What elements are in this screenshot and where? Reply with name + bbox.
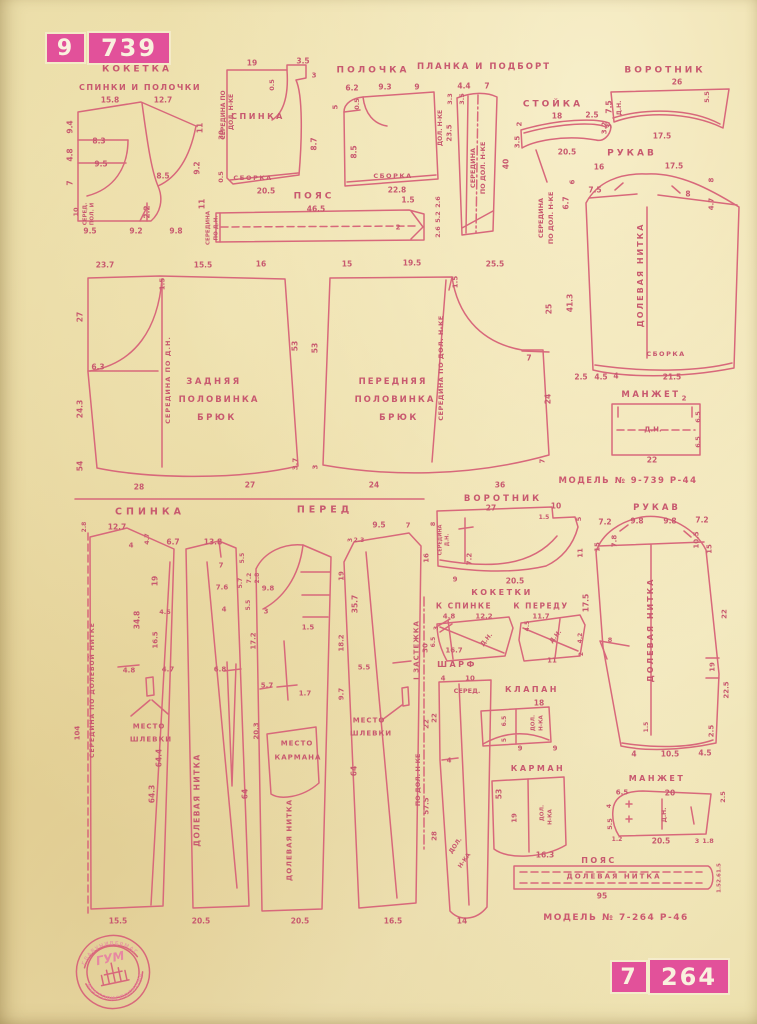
title-manzhet-1: МАНЖЕТ — [621, 391, 680, 400]
measurement-label: 2.5 — [585, 111, 598, 119]
measurement-label: 28 — [432, 831, 439, 841]
measurement-label: СЕРЕДИНА ПО ДОЛ. Н-КЕ — [438, 315, 445, 420]
measurement-label: СЕРЕД. — [83, 203, 89, 226]
measurement-label: 54 — [76, 461, 84, 471]
measurement-label: 22 — [722, 609, 729, 619]
measurement-label: 20 — [665, 789, 675, 797]
measurement-label: 25.5 — [486, 260, 505, 268]
measurement-label: ДОЛ. — [540, 805, 546, 821]
measurement-label: 3.3 — [447, 93, 454, 105]
measurement-label: ПОЛОВИНКА — [355, 396, 436, 405]
measurement-label: 0.5 — [218, 171, 225, 183]
measurement-label: 9.5 — [94, 160, 107, 168]
measurement-label: 2.8 — [255, 573, 261, 584]
measurement-label: 25 — [545, 304, 553, 314]
measurement-label: 13.8 — [204, 538, 223, 546]
measurement-label: 18 — [552, 112, 562, 120]
piece-scarf — [439, 680, 491, 918]
title-karman: КАРМАН — [511, 765, 565, 773]
measurement-label: 15.8 — [101, 96, 120, 104]
measurement-label: 64 — [241, 789, 249, 799]
measurement-label: 18 — [534, 699, 544, 707]
model-badge-7: 7 — [612, 962, 646, 992]
title-spinka-piece: СПИНКА — [231, 113, 285, 121]
measurement-label: 20.5 — [652, 837, 671, 845]
measurement-label: 4.4 — [457, 82, 470, 90]
measurement-label: 7 — [66, 180, 74, 185]
measurement-label: К СПИНКЕ — [436, 602, 492, 610]
model-badge-9: 9 — [47, 34, 84, 62]
gum-stamp: ГУМ ГЛАВУНИВЕРМАГ МОСГОРИСПОЛКОМА — [70, 929, 157, 1016]
measurement-label: 6.5 — [616, 790, 628, 797]
title-rukav-2: РУКАВ — [633, 504, 681, 513]
measurement-label: 1.5 — [717, 883, 723, 893]
measurement-label: 5.2 — [435, 211, 442, 223]
measurement-label: 3.5 — [459, 93, 466, 105]
measurement-label: 22 — [432, 713, 439, 723]
measurement-label: 24 — [544, 394, 552, 404]
measurement-label: СЕРЕДИНА — [538, 198, 545, 238]
measurement-label: МЕСТО — [281, 741, 314, 748]
measurement-label: 4 — [129, 543, 134, 550]
measurement-label: 12.2 — [475, 614, 492, 621]
measurement-label: СБОРКА — [646, 351, 685, 358]
measurement-label: 1.5 — [539, 515, 550, 521]
measurement-label: 9.8 — [630, 517, 643, 525]
measurement-label: 2 — [579, 652, 585, 656]
measurement-label: 5.5 — [704, 91, 711, 103]
measurement-label: Н-КА — [548, 809, 554, 825]
measurement-label: 11.7 — [532, 614, 549, 621]
measurement-label: СБОРКА — [373, 173, 412, 180]
measurement-label: 41.3 — [566, 294, 574, 313]
measurement-label: СЕРЕДИНА — [470, 148, 477, 188]
measurement-label: 3.5 — [296, 57, 309, 65]
measurement-label: 11 — [578, 548, 585, 558]
measurement-label: 20.5 — [257, 187, 276, 195]
measurement-label: 4.2 — [578, 633, 584, 644]
measurement-label: 1.7 — [299, 691, 311, 698]
measurement-label: ДОЛЕВАЯ НИТКА — [567, 874, 662, 881]
measurement-label: 17.5 — [665, 162, 684, 170]
measurement-label: 20.5 — [506, 577, 525, 585]
measurement-label: 4 — [222, 607, 227, 614]
measurement-label: 15 — [595, 542, 602, 552]
measurement-label: 15 — [707, 544, 714, 554]
measurement-label: 8.7 — [310, 137, 318, 150]
measurement-label: 19 — [339, 571, 346, 581]
measurement-label: 3 — [313, 465, 320, 470]
measurement-label: 10.5 — [661, 750, 680, 758]
model-badge-264: 264 — [650, 960, 728, 993]
measurement-label: 2 — [396, 225, 401, 232]
measurement-label: 12.7 — [154, 96, 173, 104]
measurement-label: 5.5 — [246, 600, 252, 611]
measurement-label: 9 — [453, 577, 458, 584]
measurement-label: 7.2 — [695, 516, 708, 524]
measurement-label: 9.3 — [378, 83, 391, 91]
measurement-label: 19 — [710, 662, 717, 672]
measurement-label: 27 — [76, 312, 84, 322]
measurement-label: 5.7 — [238, 578, 244, 589]
measurement-label: 6.5 — [431, 637, 437, 648]
measurement-label: 1.5 — [401, 196, 414, 204]
measurement-label: ДОЛЕВАЯ НИТКА — [637, 223, 645, 328]
header-pered: ПЕРЕД — [297, 505, 353, 515]
measurement-label: 11 — [196, 123, 204, 133]
measurement-label: 16 — [256, 260, 266, 268]
measurement-label: 20.3 — [254, 722, 261, 739]
measurement-label: 9.8 — [169, 227, 182, 235]
measurement-label: ДОЛ. Н-КЕ — [438, 110, 444, 146]
measurement-label: 7.5 — [605, 100, 613, 113]
measurement-label: СЕРЕДИНА ПО Д.Н. — [165, 336, 172, 424]
measurement-label: І ЗАСТЕЖКА — [414, 620, 421, 680]
measurement-label: 57.5 — [424, 797, 431, 814]
measurement-label: 20.5 — [291, 917, 310, 925]
measurement-label: 95 — [597, 892, 607, 900]
measurement-label: 18.2 — [339, 634, 346, 651]
header-spinka: СПИНКА — [115, 507, 185, 517]
measurement-label: 2.5 — [574, 373, 587, 381]
measurement-label: 19 — [151, 576, 159, 586]
measurement-label: 5.7 — [261, 683, 273, 690]
measurement-label: 3 — [312, 73, 317, 80]
title-manzhet-2: МАНЖЕТ — [629, 775, 686, 783]
measurement-label: 19 — [512, 813, 519, 823]
measurement-label: 2 — [682, 396, 687, 403]
piece-sleeve-2 — [596, 516, 719, 749]
measurement-label: 2.5 — [720, 791, 727, 803]
title-klapan: КЛАПАН — [505, 686, 559, 694]
measurement-label: 1.5 — [453, 276, 460, 288]
measurement-label: 12.7 — [108, 523, 127, 531]
measurement-label: 7.6 — [216, 585, 228, 592]
title-vorotnik-1: ВОРОТНИК — [624, 67, 705, 76]
measurement-label: 16.3 — [536, 851, 555, 859]
measurement-label: 8 — [430, 522, 437, 527]
piece-placket — [457, 93, 497, 235]
measurement-label: 17.5 — [582, 594, 590, 613]
measurement-label: 5.5 — [358, 665, 370, 672]
measurement-label: Д.Н. — [446, 534, 451, 546]
measurement-label: 19.5 — [403, 259, 422, 267]
measurement-label: ПО ДОЛ. Н-КЕ — [548, 192, 555, 245]
measurement-label: 9.7 — [339, 688, 346, 700]
measurement-label: 8 — [709, 178, 716, 183]
measurement-label: 4 — [613, 372, 618, 380]
measurement-label: 53 — [495, 789, 503, 799]
title-poyas-1: ПОЯС — [294, 193, 335, 202]
measurement-label: 7.2 — [247, 573, 253, 584]
measurement-label: 2.6 — [435, 196, 442, 208]
measurement-label: 9.4 — [66, 120, 74, 133]
measurement-label: 16 — [594, 163, 604, 171]
measurement-label: 9 — [553, 746, 558, 753]
measurement-label: 1.8 — [702, 838, 714, 845]
measurement-label: 64 — [350, 766, 358, 776]
measurement-label: 7 — [219, 563, 224, 570]
measurement-label: 28 — [134, 483, 144, 491]
measurement-label: 7 — [526, 354, 531, 362]
measurement-label: 7.2 — [467, 553, 474, 565]
measurement-label: 4.7 — [709, 198, 716, 210]
title-koketka: КОКЕТКА — [102, 66, 172, 75]
measurement-label: КАРМАНА — [275, 755, 322, 762]
measurement-label: 4 — [631, 750, 636, 758]
measurement-label: 3 — [434, 626, 440, 630]
measurement-label: 16.5 — [384, 917, 403, 925]
measurement-label: 9.2 — [129, 227, 142, 235]
measurement-label: 2.6 — [435, 226, 442, 238]
measurement-label: 14 — [457, 917, 467, 925]
model-caption-top: МОДЕЛЬ № 9-739 Р-44 — [559, 476, 698, 486]
measurement-label: 9.8 — [262, 586, 274, 593]
measurement-label: 5.5 — [240, 553, 246, 564]
measurement-label: МЕСТО — [353, 718, 386, 725]
pattern-sheet: ГУМ ГЛАВУНИВЕРМАГ МОСГОРИСПОЛКОМА 9 739 … — [0, 0, 757, 1024]
measurement-label: 16.7 — [445, 648, 462, 655]
measurement-label: 6.5 — [502, 716, 508, 727]
measurement-label: 4.5 — [525, 621, 531, 632]
measurement-label: 3 — [695, 838, 700, 845]
title-trouser-back: ЗАДНЯЯ — [186, 378, 241, 387]
measurement-label: 30 — [423, 643, 430, 653]
piece-collar-2 — [437, 507, 578, 571]
title-sharf: ШАРФ — [437, 661, 477, 669]
measurement-label: ПОЛ. И — [90, 203, 96, 225]
gum-stamp-name: ГУМ — [95, 948, 126, 968]
measurement-label: 2.6 — [717, 873, 723, 883]
measurement-label: 8.3 — [92, 137, 105, 145]
measurement-label: 11 — [547, 658, 557, 665]
measurement-label: 27 — [486, 504, 496, 512]
measurement-label: 16 — [424, 553, 431, 563]
measurement-label: 9.5 — [83, 227, 96, 235]
measurement-label: 1.5 — [302, 625, 314, 632]
measurement-label: 8 — [608, 637, 613, 644]
measurement-label: 3 — [607, 124, 614, 129]
title-stoyka: СТОЙКА — [523, 101, 583, 110]
measurement-label: 20.5 — [558, 148, 577, 156]
measurement-label: СЕРЕД. — [454, 688, 481, 695]
measurement-label: 35.7 — [351, 595, 359, 614]
measurement-label: 24 — [369, 481, 379, 489]
measurement-label: СЕРЕДИНА — [206, 211, 212, 245]
measurement-label: 17.2 — [251, 632, 258, 649]
measurement-label: 4.7 — [162, 667, 174, 674]
measurement-label: ПО ДОЛ. Н-КЕ — [480, 142, 487, 195]
measurement-label: 8 — [685, 190, 690, 198]
measurement-label: 8.5 — [350, 145, 358, 158]
measurement-label: 1.5 — [717, 863, 723, 873]
measurement-label: 10 — [73, 207, 80, 216]
measurement-label: ДОЛЕВАЯ НИТКА — [287, 799, 294, 881]
measurement-label: ДОЛ. Н-КЕ — [229, 94, 235, 130]
title-poyas-2: ПОЯС — [581, 857, 617, 865]
measurement-label: К ПЕРЕДУ — [513, 602, 568, 610]
measurement-label: 3 — [264, 609, 269, 616]
measurement-label: 5 — [502, 738, 508, 742]
measurement-label: 10 — [551, 502, 561, 510]
measurement-label: 17.5 — [653, 132, 672, 140]
measurement-label: 1.2 — [612, 837, 623, 843]
measurement-label: 36 — [495, 481, 505, 489]
measurement-label: 10.5 — [694, 531, 701, 548]
measurement-label: 6.5 — [695, 411, 702, 423]
measurement-label: ПО ДОЛ. Н-КЕ — [415, 754, 422, 807]
measurement-label: 2.2 — [143, 205, 151, 218]
measurement-label: 4.7 — [144, 533, 151, 545]
measurement-label: 6 — [570, 180, 577, 185]
measurement-label: 7.5 — [588, 186, 601, 194]
measurement-label: 6.8 — [214, 667, 226, 674]
measurement-label: 7 — [540, 459, 547, 464]
measurement-label: 4.8 — [443, 614, 455, 621]
measurement-label: 9 — [414, 83, 419, 91]
measurement-label: 21.5 — [663, 373, 682, 381]
measurement-label: БРЮК — [379, 414, 419, 423]
measurement-label: 26 — [672, 78, 682, 86]
measurement-label: 34.8 — [133, 611, 141, 630]
measurement-label: СЕРЕДИНА ПО ДОЛЕВОЙ НИТКЕ — [90, 622, 96, 758]
measurement-label: 7.8 — [612, 535, 619, 547]
measurement-label: 2 — [517, 122, 524, 127]
measurement-label: СЕРЕДИНА — [439, 525, 444, 556]
measurement-label: Д.Н. — [644, 427, 661, 434]
measurement-label: 7 — [406, 523, 411, 530]
measurement-label: 6.5 — [695, 436, 702, 448]
measurement-label: ШЛЕВКИ — [130, 737, 172, 744]
measurement-label: 53 — [311, 343, 319, 353]
measurement-label: 4.8 — [66, 148, 74, 161]
measurement-label: 104 — [75, 726, 82, 741]
measurement-label: 2.8 — [82, 522, 88, 533]
measurement-label: ШЛЕВКИ — [350, 731, 392, 738]
measurement-label: 3.5 — [515, 136, 522, 148]
measurement-label: 23.7 — [96, 261, 115, 269]
measurement-label: 4.5 — [698, 749, 711, 757]
measurement-label: ДОЛЕВАЯ НИТКА — [193, 753, 201, 846]
measurement-label: 22 — [424, 719, 431, 729]
measurement-label: 22.5 — [724, 681, 731, 698]
measurement-label: 4.8 — [123, 668, 135, 675]
measurement-label: 4.5 — [159, 609, 171, 616]
measurement-label: 9 — [518, 746, 523, 753]
measurement-label: 6.2 — [345, 84, 358, 92]
piece-belt-1 — [216, 210, 424, 242]
measurement-label: 7.2 — [598, 518, 611, 526]
measurement-label: 0.5 — [354, 98, 361, 110]
measurement-label: 15 — [342, 260, 352, 268]
title-trouser-front: ПЕРЕДНЯЯ — [359, 378, 428, 387]
measurement-label: ДОЛЕВАЯ НИТКА — [647, 578, 655, 683]
measurement-label: 11 — [198, 199, 206, 209]
measurement-label: 5 — [576, 517, 583, 522]
title-koketki: КОКЕТКИ — [471, 589, 533, 597]
measurement-label: ПО Д.Н. — [214, 216, 220, 241]
measurement-label: 1.5 — [644, 722, 650, 733]
measurement-label: 9.8 — [663, 517, 676, 525]
measurement-label: 9.2 — [193, 161, 201, 174]
measurement-label: 3.7 — [293, 458, 300, 470]
measurement-label: 64.3 — [148, 785, 156, 804]
measurement-label: МЕСТО — [133, 724, 166, 731]
measurement-label: 5 — [333, 105, 340, 110]
measurement-label: ДОЛ. — [531, 715, 537, 731]
measurement-label: 4.5 — [594, 373, 607, 381]
measurement-label: 22 — [647, 456, 657, 464]
measurement-label: 19 — [247, 59, 257, 67]
measurement-label: 2.5 — [709, 725, 716, 737]
measurement-label: Н-КА — [539, 715, 545, 731]
measurement-label: 53 — [291, 341, 299, 351]
piece-back-panel-1 — [88, 528, 174, 913]
measurement-label: 20.5 — [192, 917, 211, 925]
measurement-label: 16.5 — [153, 631, 160, 648]
measurement-label: 4 — [441, 676, 446, 683]
measurement-label: 4 — [447, 758, 452, 765]
piece-collar-1 — [611, 89, 729, 128]
piece-front-panel-1 — [256, 545, 331, 911]
piece-sleeve-1 — [586, 174, 739, 376]
measurement-label: 15.5 — [194, 261, 213, 269]
measurement-label: 6.7 — [562, 196, 570, 209]
measurement-label: Д.Н. — [662, 808, 668, 823]
title-vorotnik-2: ВОРОТНИК — [464, 495, 542, 504]
measurement-label: 4 — [607, 804, 613, 808]
title-rukav-1: РУКАВ — [607, 150, 657, 159]
model-badge-739: 739 — [89, 33, 169, 63]
measurement-label: 5.5 — [607, 818, 614, 830]
measurement-label: 22.8 — [388, 186, 407, 194]
measurement-label: 40 — [502, 159, 510, 169]
measurement-label: ПОЛОВИНКА — [179, 396, 260, 405]
measurement-label: 6.3 — [91, 363, 104, 371]
measurement-label: БРЮК — [197, 414, 237, 423]
title-planka: ПЛАНКА И ПОДБОРТ — [417, 63, 551, 72]
measurement-label: 6.7 — [166, 538, 179, 546]
measurement-label: 30 — [219, 130, 226, 140]
measurement-label: СБОРКА — [233, 175, 272, 182]
measurement-label: 27 — [245, 481, 255, 489]
model-caption-bottom: МОДЕЛЬ № 7-264 Р-46 — [543, 913, 688, 923]
title-polochka: ПОЛОЧКА — [337, 67, 410, 76]
measurement-label: 2.3 — [354, 538, 365, 544]
piece-back-bodice — [227, 65, 306, 184]
measurement-label: 7 — [484, 82, 489, 90]
measurement-label: 8.5 — [156, 172, 169, 180]
measurement-label: 24.3 — [76, 400, 84, 419]
measurement-label: 9.5 — [372, 521, 385, 529]
measurement-label: 10 — [465, 676, 475, 683]
measurement-label: 1.5 — [160, 278, 167, 290]
measurement-label: 64.4 — [155, 749, 163, 768]
piece-back-panel-2 — [186, 541, 249, 908]
measurement-label: Д.Н. — [617, 101, 623, 116]
title-koketka-sub: СПИНКИ И ПОЛОЧКИ — [79, 84, 201, 92]
measurement-label: 15.5 — [109, 917, 128, 925]
measurement-label: 23.5 — [447, 124, 454, 141]
measurement-label: 0.5 — [269, 79, 276, 91]
measurement-label: 46.5 — [307, 205, 326, 213]
